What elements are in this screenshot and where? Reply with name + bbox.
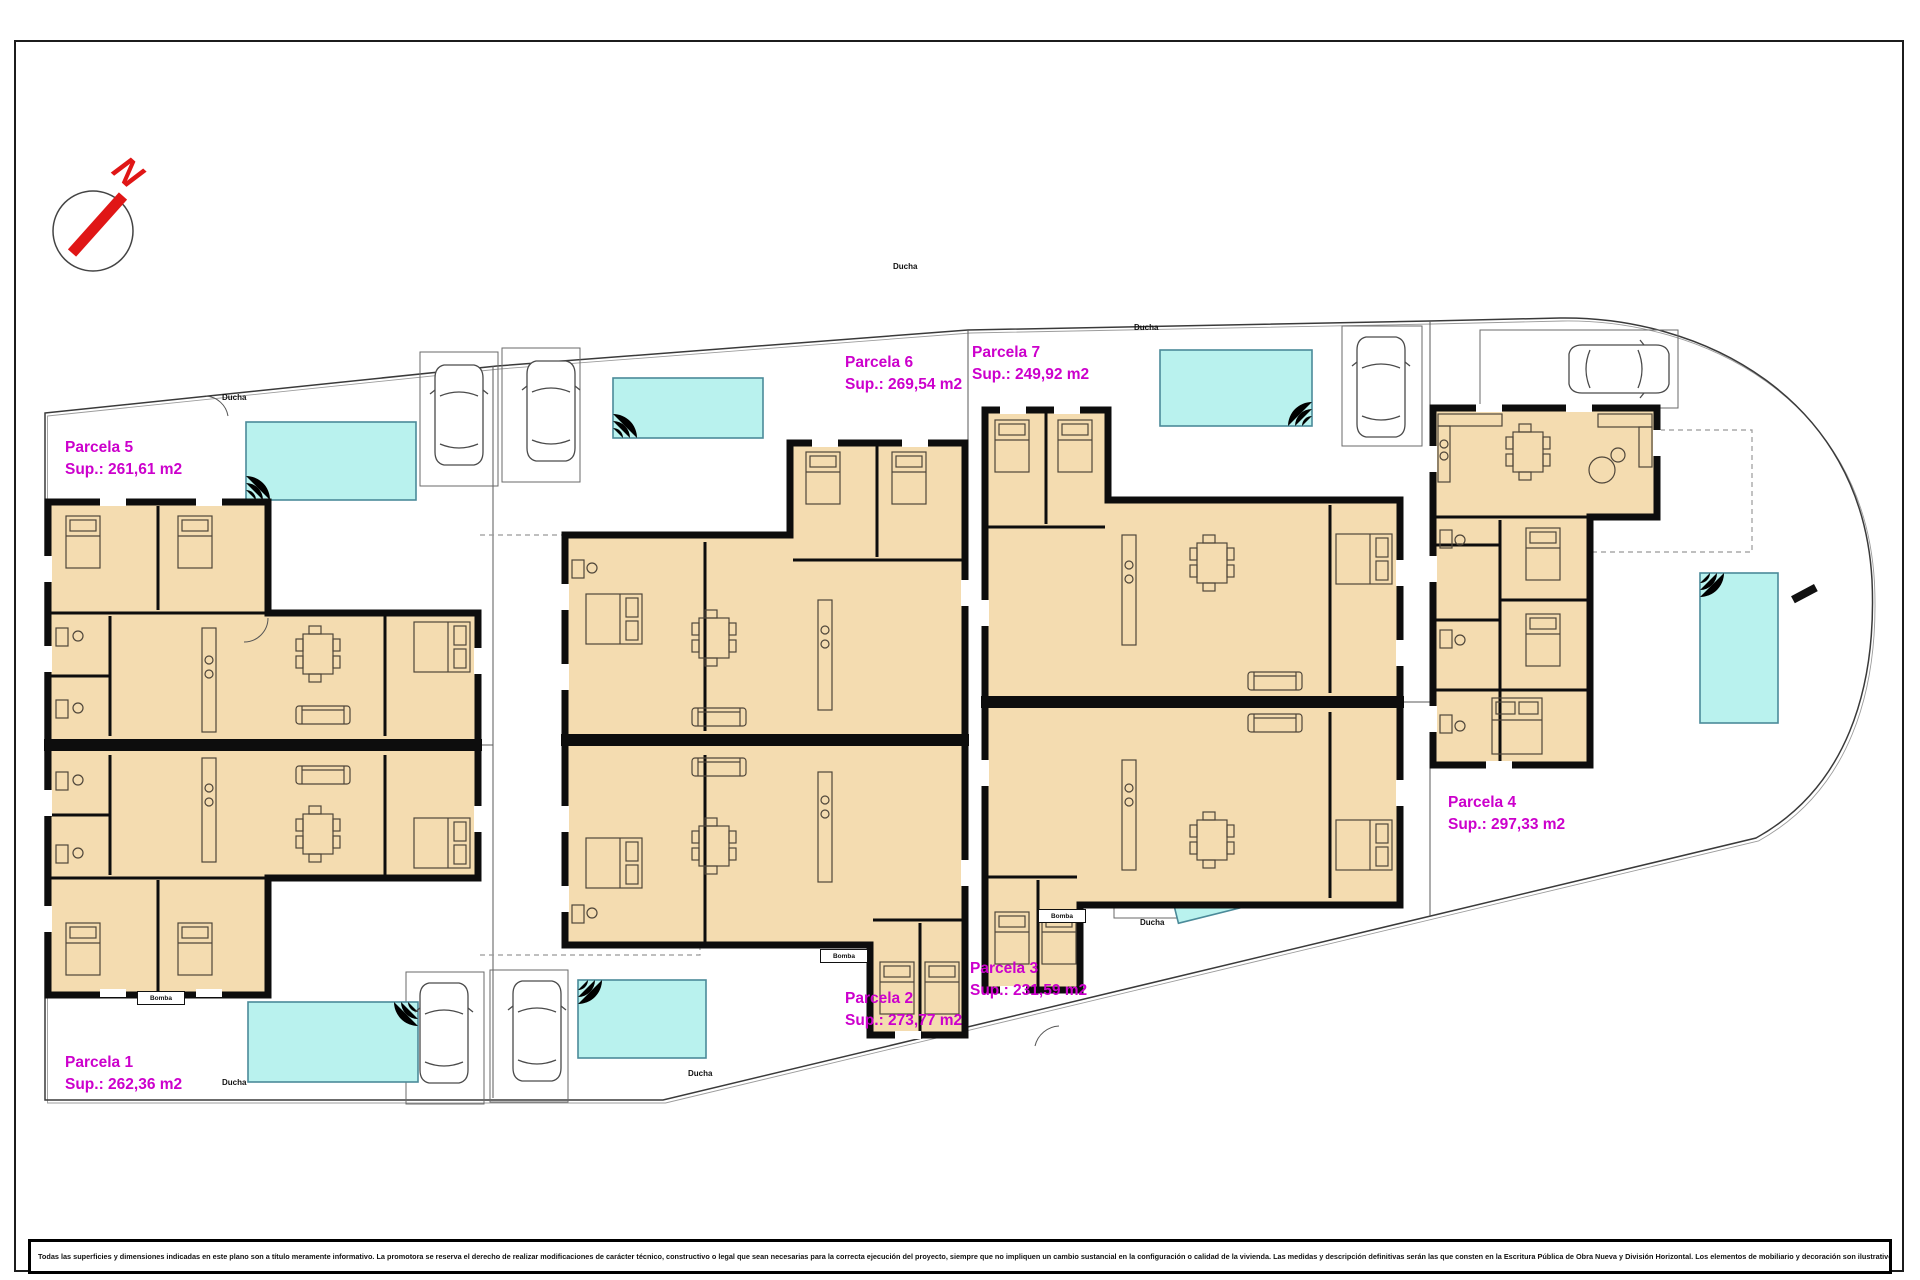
parcel-label-7: Parcela 7 Sup.: 249,92 m2 <box>972 342 1089 385</box>
parcel-5-area: Sup.: 261,61 m2 <box>65 459 182 481</box>
shower-label: Ducha <box>1134 323 1158 332</box>
parcel-6-area: Sup.: 269,54 m2 <box>845 374 962 396</box>
parcel-2-area: Sup.: 273,77 m2 <box>845 1010 962 1032</box>
pool-parcela-5 <box>246 422 416 500</box>
parcel-1-area: Sup.: 262,36 m2 <box>65 1074 182 1096</box>
building-parcelas-7-3 <box>981 406 1404 994</box>
car-icon <box>508 981 566 1081</box>
car-icon <box>522 361 580 461</box>
parcel-7-area: Sup.: 249,92 m2 <box>972 364 1089 386</box>
pool-parcela-4 <box>1700 573 1778 723</box>
building-parcelas-6-2 <box>561 439 969 1039</box>
parcel-4-name: Parcela 4 <box>1448 792 1565 814</box>
shower-label: Ducha <box>222 1078 246 1087</box>
parcel-5-name: Parcela 5 <box>65 437 182 459</box>
north-compass: N <box>53 148 152 271</box>
building-parcela-4 <box>1429 404 1661 769</box>
pool-parcela-2 <box>578 980 706 1058</box>
pump-label: Bomba <box>1038 909 1086 923</box>
building-parcelas-5-1 <box>44 498 482 997</box>
parcel-2-name: Parcela 2 <box>845 988 962 1010</box>
shower-label: Ducha <box>893 262 917 271</box>
parcel-label-6: Parcela 6 Sup.: 269,54 m2 <box>845 352 962 395</box>
car-icon <box>1352 337 1410 437</box>
parcel-1-name: Parcela 1 <box>65 1052 182 1074</box>
parcel-7-name: Parcela 7 <box>972 342 1089 364</box>
parcel-label-3: Parcela 3 Sup.: 231,59 m2 <box>970 958 1087 1001</box>
shower-label: Ducha <box>1140 918 1164 927</box>
car-icon <box>430 365 488 465</box>
pool-parcela-7 <box>1160 350 1312 426</box>
shower-label: Ducha <box>688 1069 712 1078</box>
plan-page: N <box>0 0 1920 1280</box>
parcel-label-4: Parcela 4 Sup.: 297,33 m2 <box>1448 792 1565 835</box>
pump-label: Bomba <box>820 949 868 963</box>
north-letter: N <box>105 148 152 197</box>
car-icon <box>1569 340 1669 398</box>
parcel-6-name: Parcela 6 <box>845 352 962 374</box>
parcel-label-2: Parcela 2 Sup.: 273,77 m2 <box>845 988 962 1031</box>
parcel-3-area: Sup.: 231,59 m2 <box>970 980 1087 1002</box>
car-icon <box>415 983 473 1083</box>
pool-parcela-6 <box>613 378 763 438</box>
shower-label: Ducha <box>222 393 246 402</box>
site-plan-drawing: N <box>0 0 1920 1280</box>
parcel-label-1: Parcela 1 Sup.: 262,36 m2 <box>65 1052 182 1095</box>
parcel-4-area: Sup.: 297,33 m2 <box>1448 814 1565 836</box>
parcel-3-name: Parcela 3 <box>970 958 1087 980</box>
parcel-label-5: Parcela 5 Sup.: 261,61 m2 <box>65 437 182 480</box>
pump-label: Bomba <box>137 991 185 1005</box>
disclaimer-bar: Todas las superficies y dimensiones indi… <box>28 1239 1892 1274</box>
pool-parcela-1 <box>248 1002 418 1082</box>
